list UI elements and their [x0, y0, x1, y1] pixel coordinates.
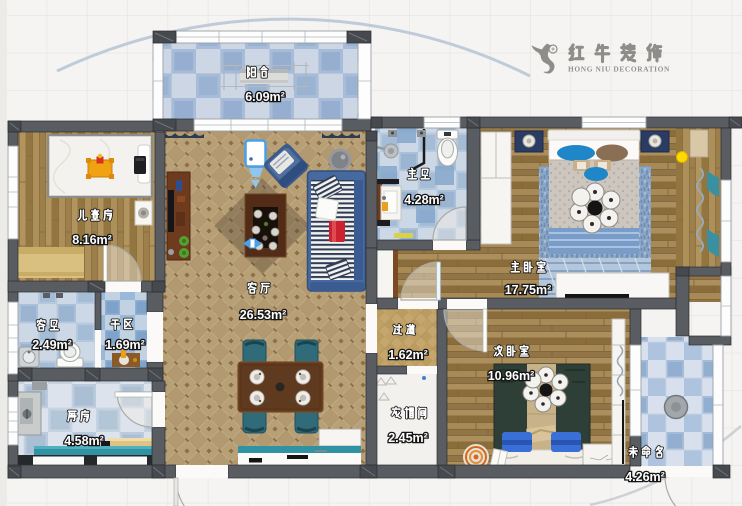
svg-text:26.53m²: 26.53m²	[240, 308, 287, 322]
svg-text:8.16m²: 8.16m²	[72, 233, 112, 247]
svg-text:1.69m²: 1.69m²	[105, 338, 145, 352]
svg-text:4.28m²: 4.28m²	[404, 193, 444, 207]
svg-text:10.96m²: 10.96m²	[488, 369, 535, 383]
svg-text:17.75m²: 17.75m²	[505, 283, 552, 297]
svg-text:6.09m²: 6.09m²	[245, 90, 285, 104]
svg-text:HONG NIU DECORATION: HONG NIU DECORATION	[568, 65, 670, 74]
svg-text:2.49m²: 2.49m²	[32, 338, 72, 352]
svg-text:1.62m²: 1.62m²	[388, 348, 428, 362]
svg-text:4.26m²: 4.26m²	[625, 470, 665, 484]
svg-text:2.45m²: 2.45m²	[388, 431, 428, 445]
svg-text:4.58m²: 4.58m²	[64, 434, 104, 448]
